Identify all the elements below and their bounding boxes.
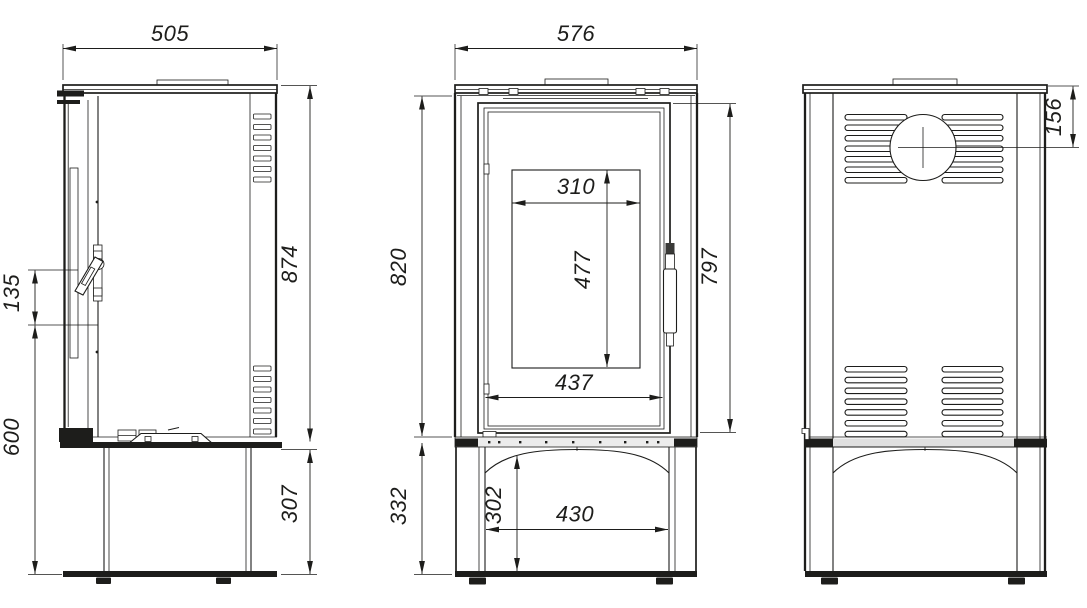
front-door-handle bbox=[664, 243, 677, 346]
back-base bbox=[802, 429, 1047, 585]
side-view: 505 874 135 600 307 bbox=[0, 21, 317, 584]
stove-dimension-drawing: 505 874 135 600 307 bbox=[0, 0, 1087, 608]
dim-front-glass-width: 310 bbox=[513, 174, 640, 203]
dim-front-door-height-label: 797 bbox=[697, 248, 722, 286]
dim-side-base-height-label: 307 bbox=[277, 485, 302, 523]
side-vents-bottom bbox=[254, 366, 272, 434]
dim-front-base-height: 332 bbox=[386, 443, 452, 575]
back-top-plate bbox=[803, 79, 1047, 93]
side-vents-top bbox=[254, 114, 272, 182]
dim-front-base-height-label: 332 bbox=[386, 487, 411, 525]
dim-front-door-width-label: 437 bbox=[555, 370, 593, 395]
dim-side-width: 505 bbox=[63, 21, 277, 80]
dim-front-body-height-label: 820 bbox=[386, 248, 411, 286]
dim-side-handle-span-label: 135 bbox=[0, 274, 24, 312]
dim-front-door-height: 797 bbox=[673, 104, 736, 433]
back-vents-bottom bbox=[845, 367, 1003, 437]
dim-front-base-width: 430 bbox=[486, 502, 668, 530]
drawing-canvas: 505 874 135 600 307 bbox=[0, 0, 1087, 608]
dim-front-width-label: 576 bbox=[557, 21, 595, 46]
side-bottom-assembly bbox=[59, 428, 282, 449]
dim-front-base-width-label: 430 bbox=[556, 502, 594, 527]
dim-side-handle-height: 600 bbox=[0, 326, 62, 575]
side-door-handle bbox=[75, 245, 104, 301]
front-top-plate bbox=[455, 79, 697, 99]
dim-side-handle-height-label: 600 bbox=[0, 418, 24, 456]
dim-back-flue-offset-label: 156 bbox=[1041, 98, 1066, 136]
side-pedestal bbox=[63, 448, 277, 584]
dim-front-base-opening-height: 302 bbox=[481, 456, 517, 571]
dim-front-base-opening-height-label: 302 bbox=[481, 486, 506, 524]
dim-side-base-height: 307 bbox=[277, 450, 317, 575]
dim-front-door-width: 437 bbox=[486, 370, 663, 398]
side-back-panel bbox=[250, 93, 276, 437]
dim-side-width-label: 505 bbox=[151, 21, 189, 46]
dim-front-glass-width-label: 310 bbox=[557, 174, 595, 199]
dim-front-body-height: 820 bbox=[386, 96, 452, 437]
dim-front-glass-height: 477 bbox=[570, 171, 607, 368]
back-view: 156 bbox=[802, 79, 1079, 585]
dim-front-glass-height-label: 477 bbox=[570, 251, 595, 289]
dim-side-height-label: 874 bbox=[277, 245, 302, 283]
dim-side-height: 874 bbox=[277, 86, 317, 442]
dim-front-width: 576 bbox=[455, 21, 697, 80]
front-view: 576 820 797 310 477 437 332 bbox=[386, 21, 736, 585]
side-top-plate bbox=[63, 80, 277, 93]
